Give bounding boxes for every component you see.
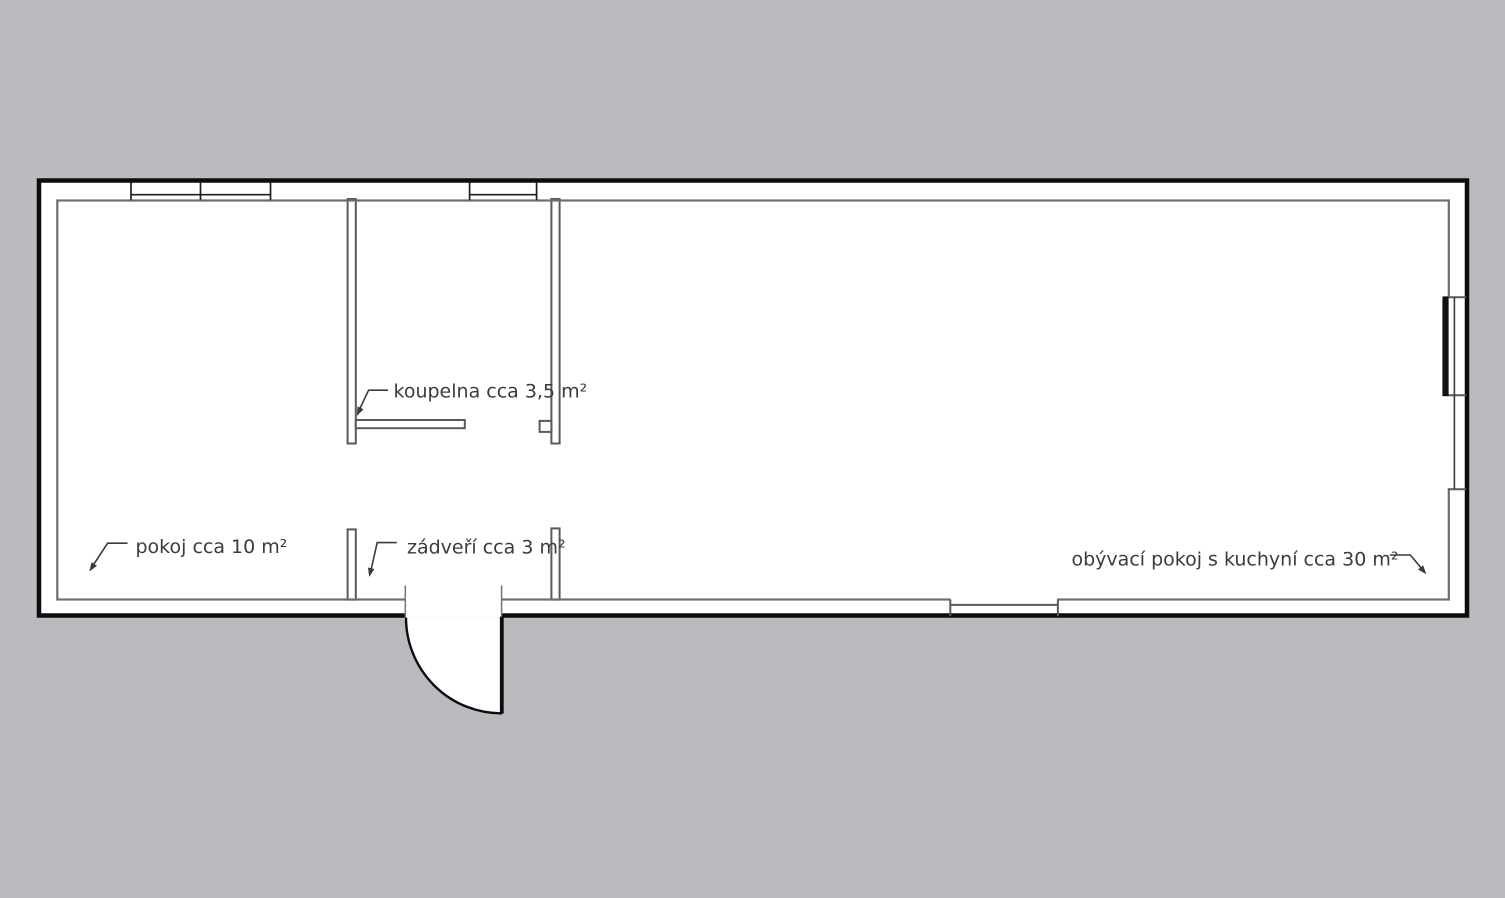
room-label-koupelna: koupelna cca 3,5 m² <box>394 381 588 403</box>
window-line-break <box>951 597 1058 602</box>
bathroom-door-jamb <box>540 421 552 432</box>
partition-pokoj-hall-stub <box>348 529 356 599</box>
entrance-opening <box>406 597 502 618</box>
balcony-door-leaf-icon <box>1442 297 1448 397</box>
partition-bathroom-living <box>551 199 559 444</box>
room-label-zadveri: zádveří cca 3 m² <box>407 537 566 559</box>
bathroom-south-wall <box>356 420 465 428</box>
room-label-pokoj: pokoj cca 10 m² <box>136 536 288 558</box>
floor-plan-drawing: pokoj cca 10 m² koupelna cca 3,5 m² zádv… <box>0 0 1505 898</box>
partition-pokoj-bathroom <box>348 199 356 444</box>
room-label-obyvaci-pokoj: obývací pokoj s kuchyní cca 30 m² <box>1072 549 1399 571</box>
floor-plan-canvas: pokoj cca 10 m² koupelna cca 3,5 m² zádv… <box>0 0 1505 898</box>
